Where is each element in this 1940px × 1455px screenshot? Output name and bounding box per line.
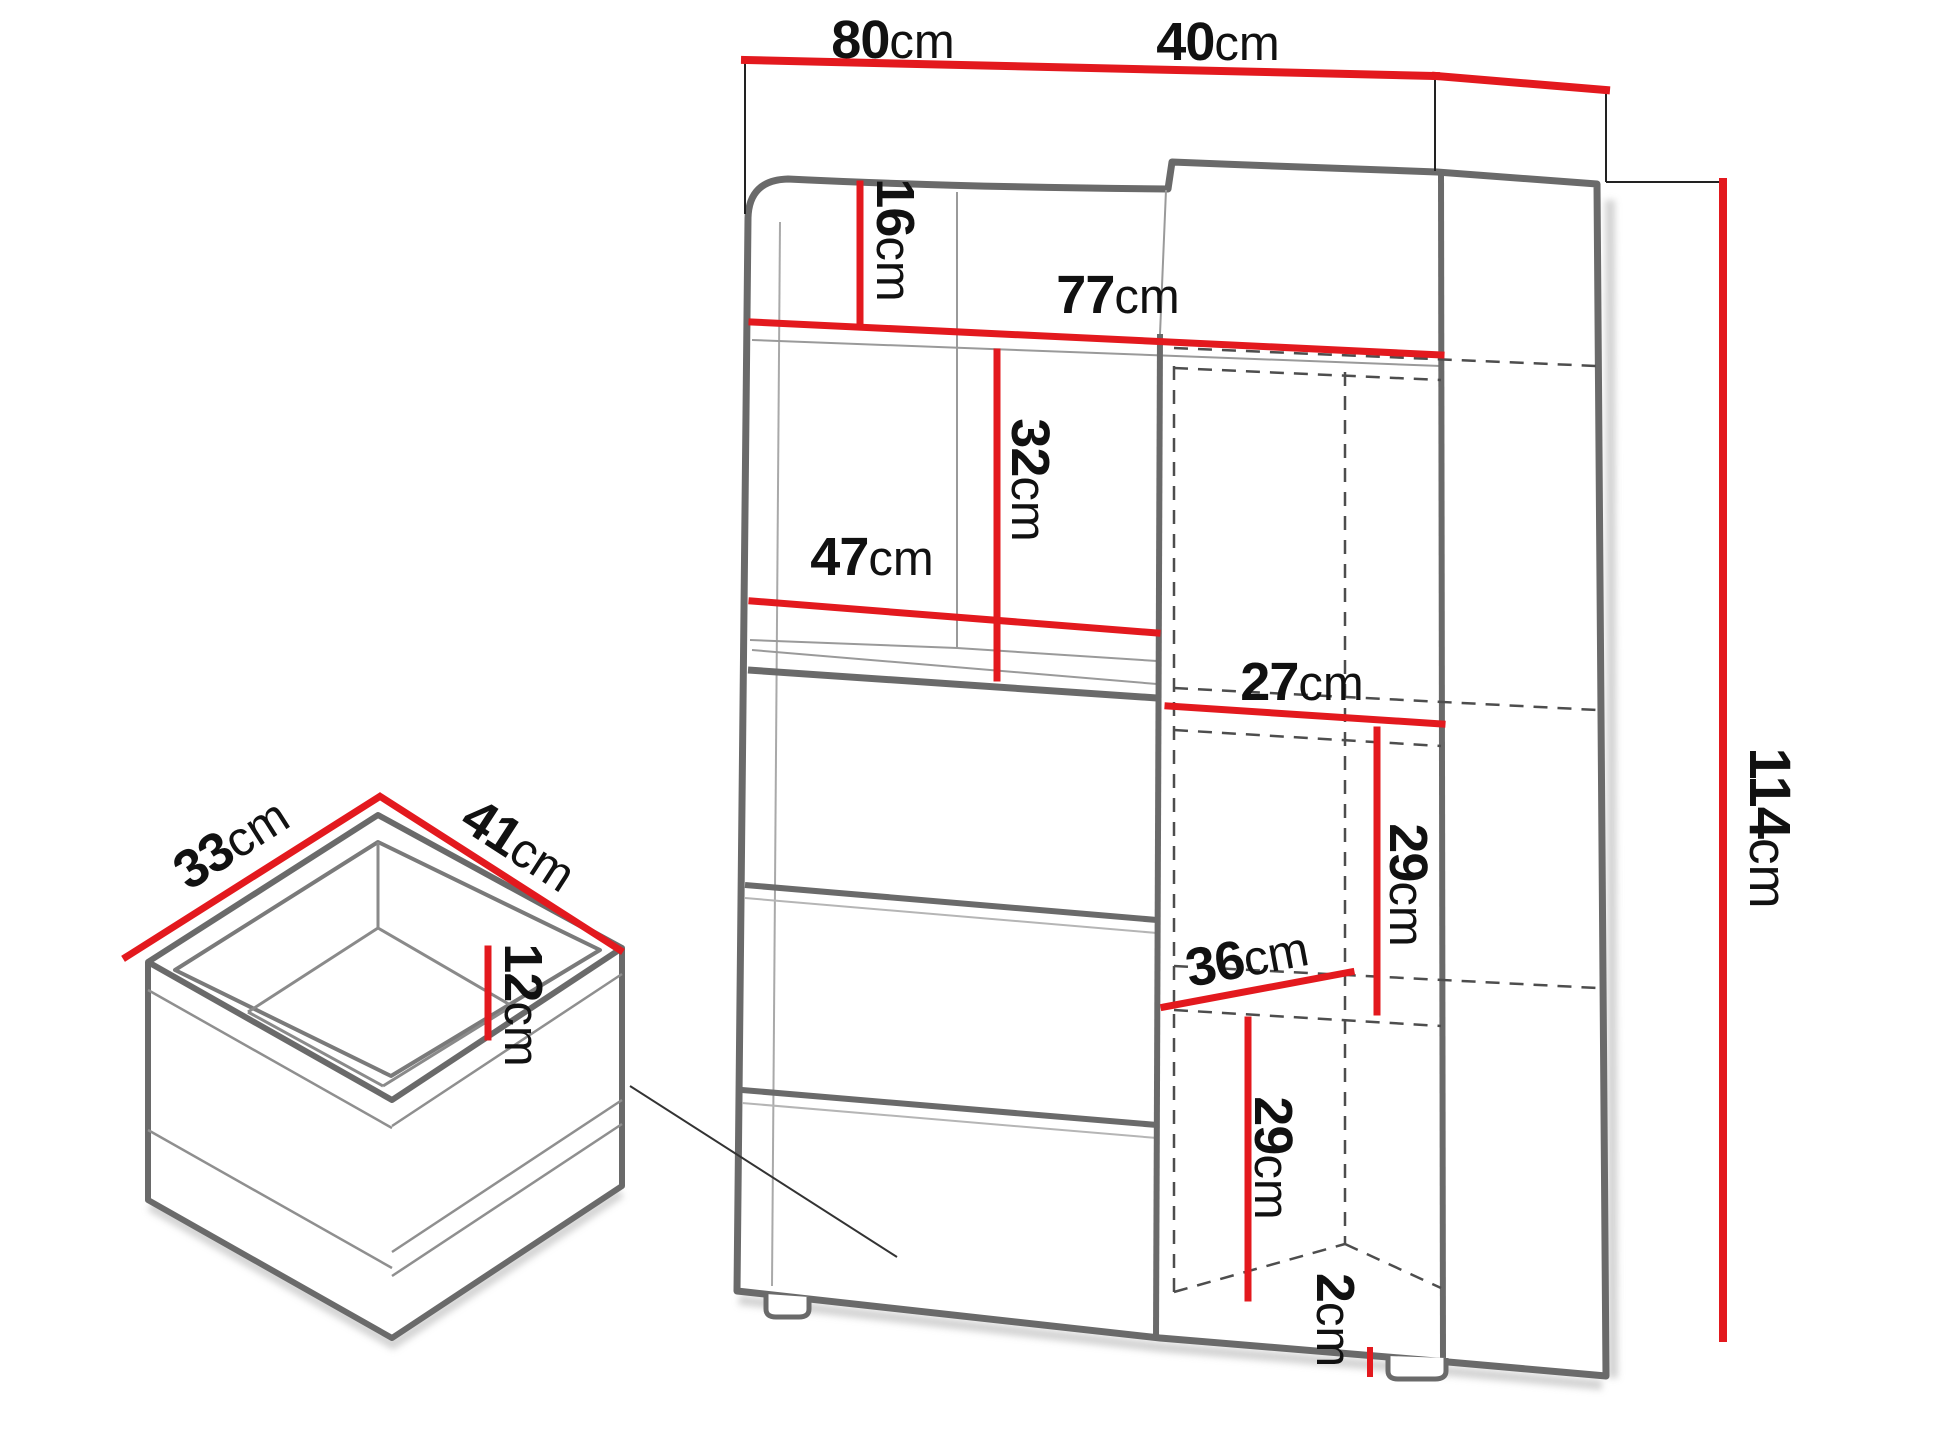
dim-top-niche-label: 16cm: [865, 178, 925, 301]
dim-shelf-lower-label: 29cm: [1243, 1096, 1303, 1219]
dim-height-label: 114cm: [1737, 747, 1802, 908]
diagram-canvas: 80cm 40cm 114cm 16cm 77cm 32cm 47cm 27cm…: [0, 0, 1940, 1455]
dim-shelf-upper-label: 29cm: [1378, 823, 1438, 946]
dim-interior-width-label: 77cm: [1056, 265, 1179, 325]
dim-shelf-width-label: 27cm: [1240, 652, 1363, 712]
dim-foot-label: 2cm: [1305, 1273, 1365, 1367]
right-column-edge: [1441, 173, 1443, 1360]
foot-right: [1388, 1356, 1446, 1379]
foot-left: [766, 1294, 809, 1317]
dim-depth-label: 40cm: [1156, 12, 1279, 72]
dim-niche-width-label: 47cm: [810, 527, 933, 587]
dim-width-label: 80cm: [831, 10, 954, 70]
furniture-dimension-diagram: 80cm 40cm 114cm 16cm 77cm 32cm 47cm 27cm…: [0, 0, 1940, 1455]
dim-drawer-height-label: 12cm: [493, 943, 553, 1066]
divider-edge: [1156, 334, 1160, 1337]
dim-niche-height-label: 32cm: [1000, 418, 1060, 541]
dim-depth-line: [1436, 76, 1606, 90]
